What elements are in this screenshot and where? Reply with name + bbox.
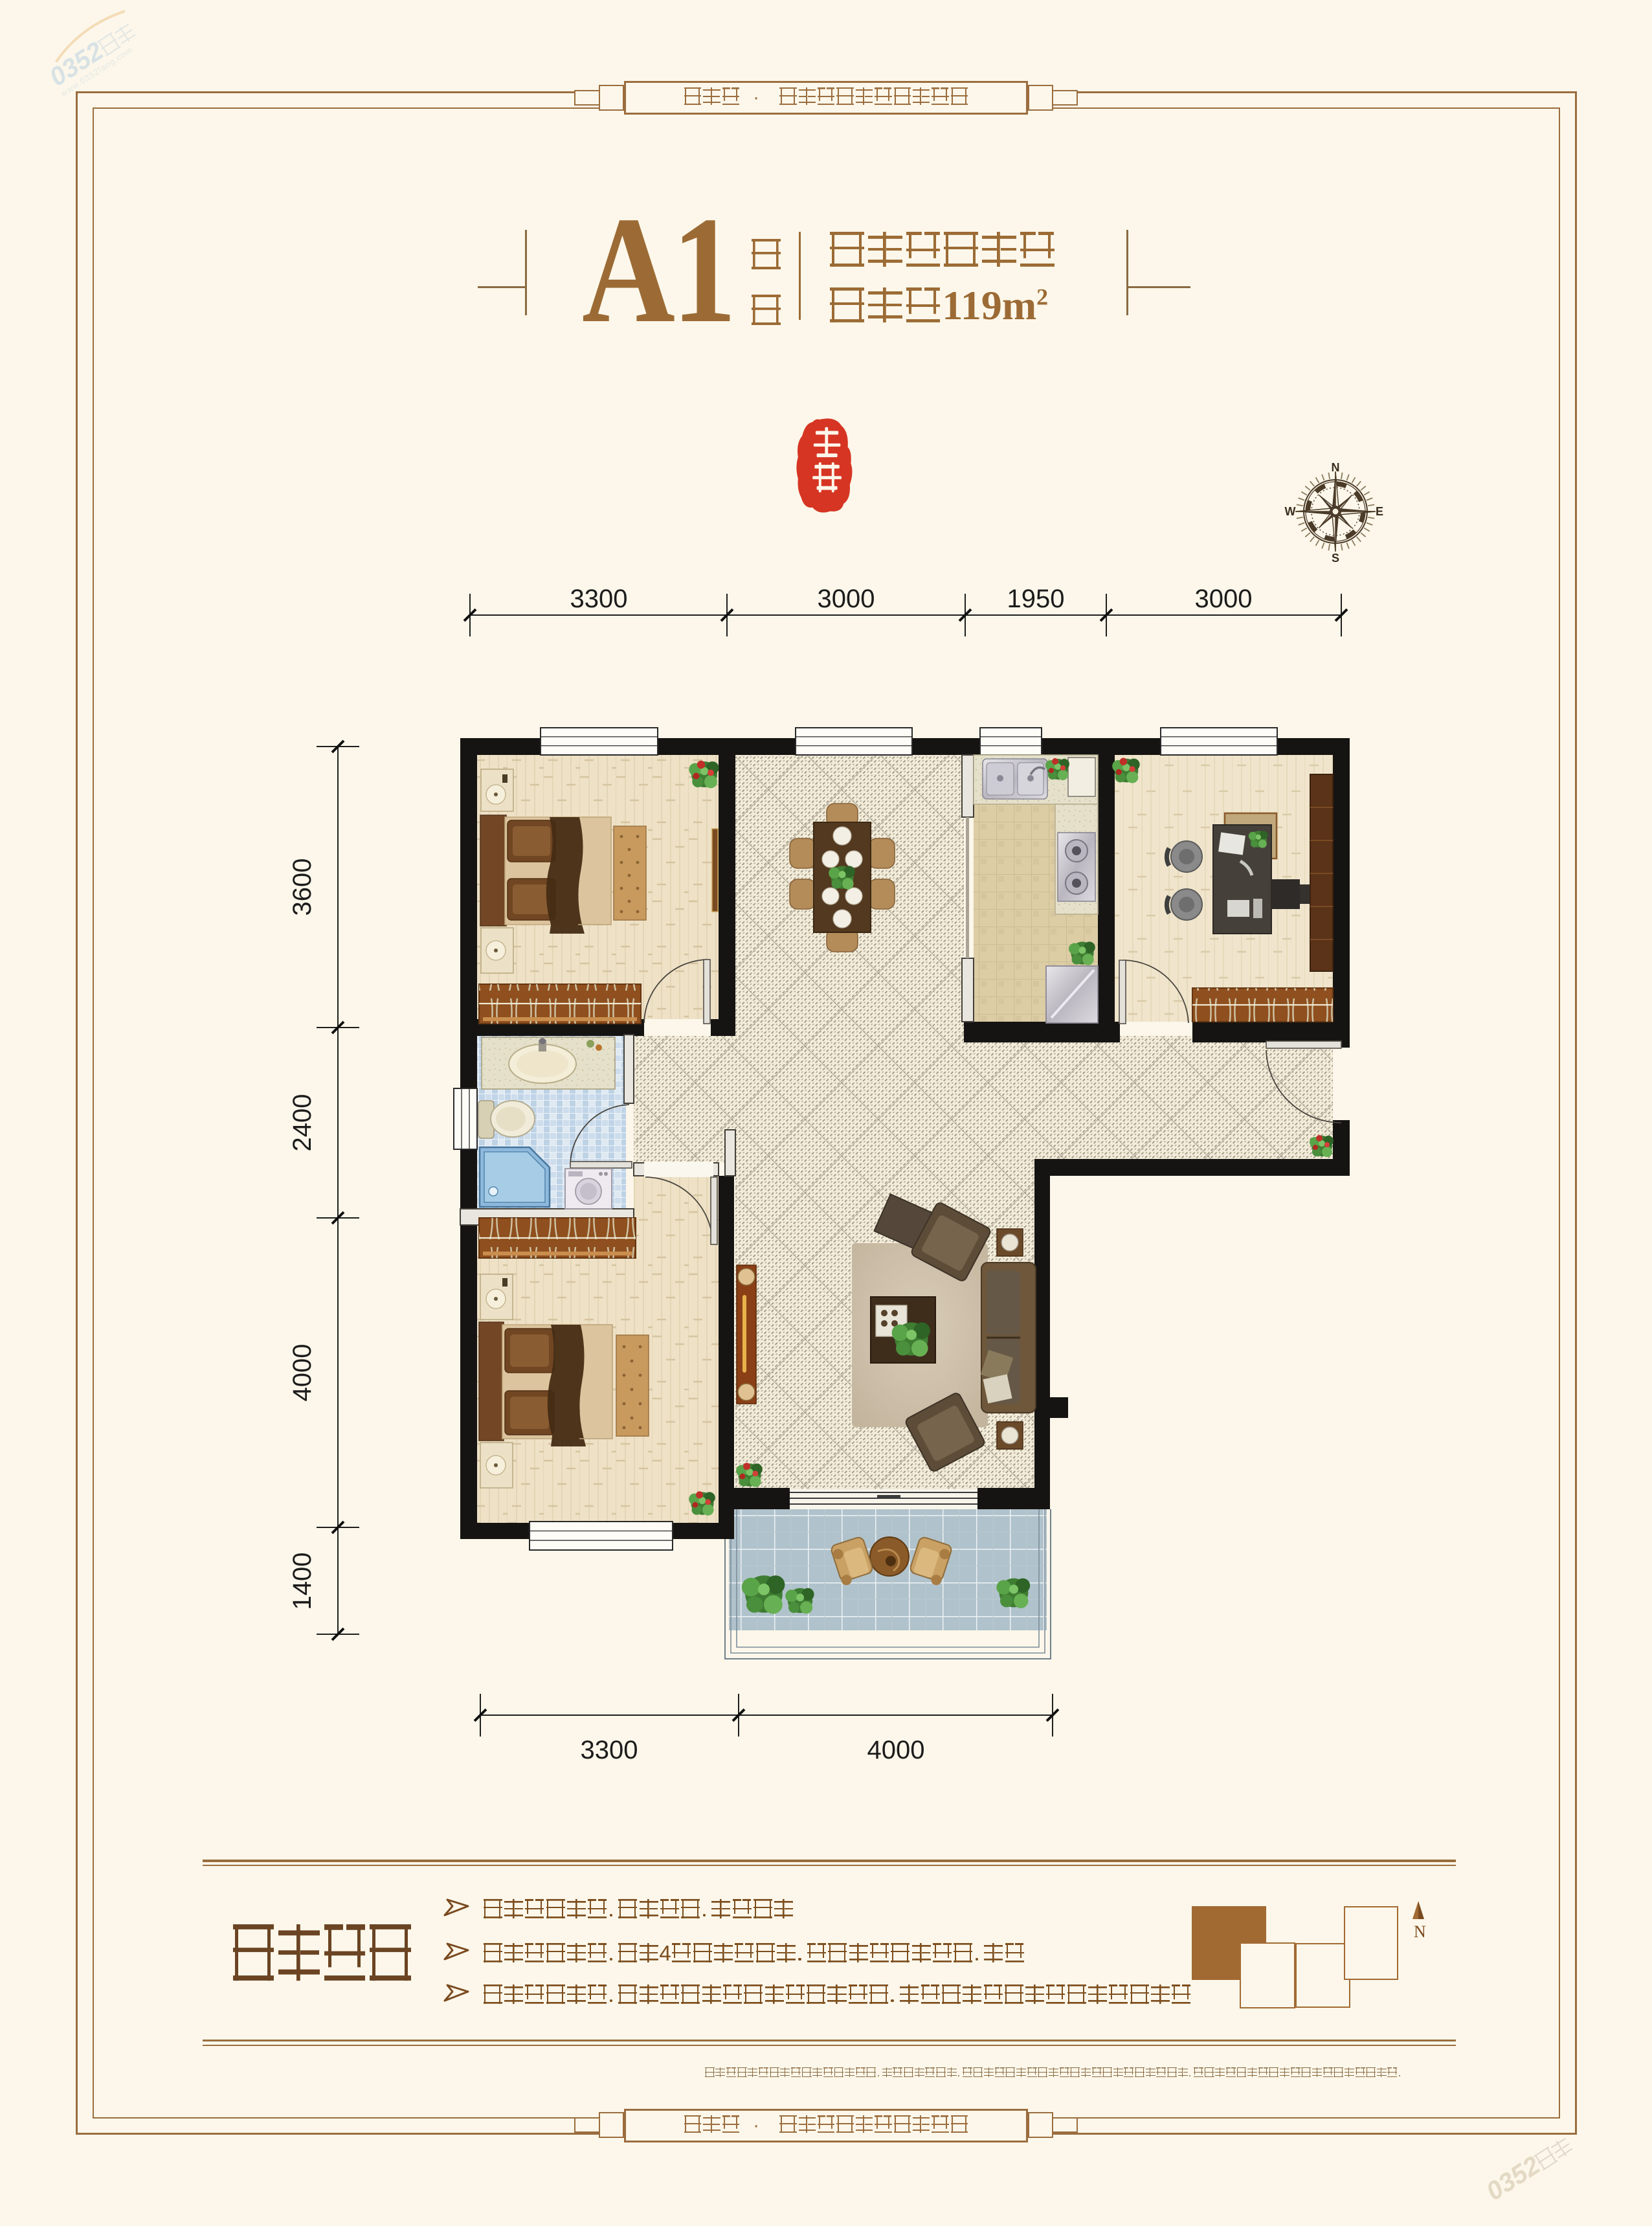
svg-text:1400: 1400 [288,1553,317,1610]
svg-text:S: S [1332,552,1339,565]
svg-text:3600: 3600 [288,859,317,916]
svg-text:3300: 3300 [581,1736,638,1764]
svg-text:1950: 1950 [1007,585,1065,613]
svg-text:4000: 4000 [288,1344,317,1402]
svg-text:N: N [1332,461,1340,474]
svg-text:E: E [1376,505,1383,518]
svg-text:2400: 2400 [288,1094,317,1152]
svg-text:W: W [1285,505,1296,518]
svg-text:3000: 3000 [1195,585,1253,613]
svg-text:4000: 4000 [867,1736,925,1764]
svg-text:N: N [1414,1922,1426,1941]
svg-text:3300: 3300 [570,585,628,613]
svg-text:3000: 3000 [818,585,875,613]
